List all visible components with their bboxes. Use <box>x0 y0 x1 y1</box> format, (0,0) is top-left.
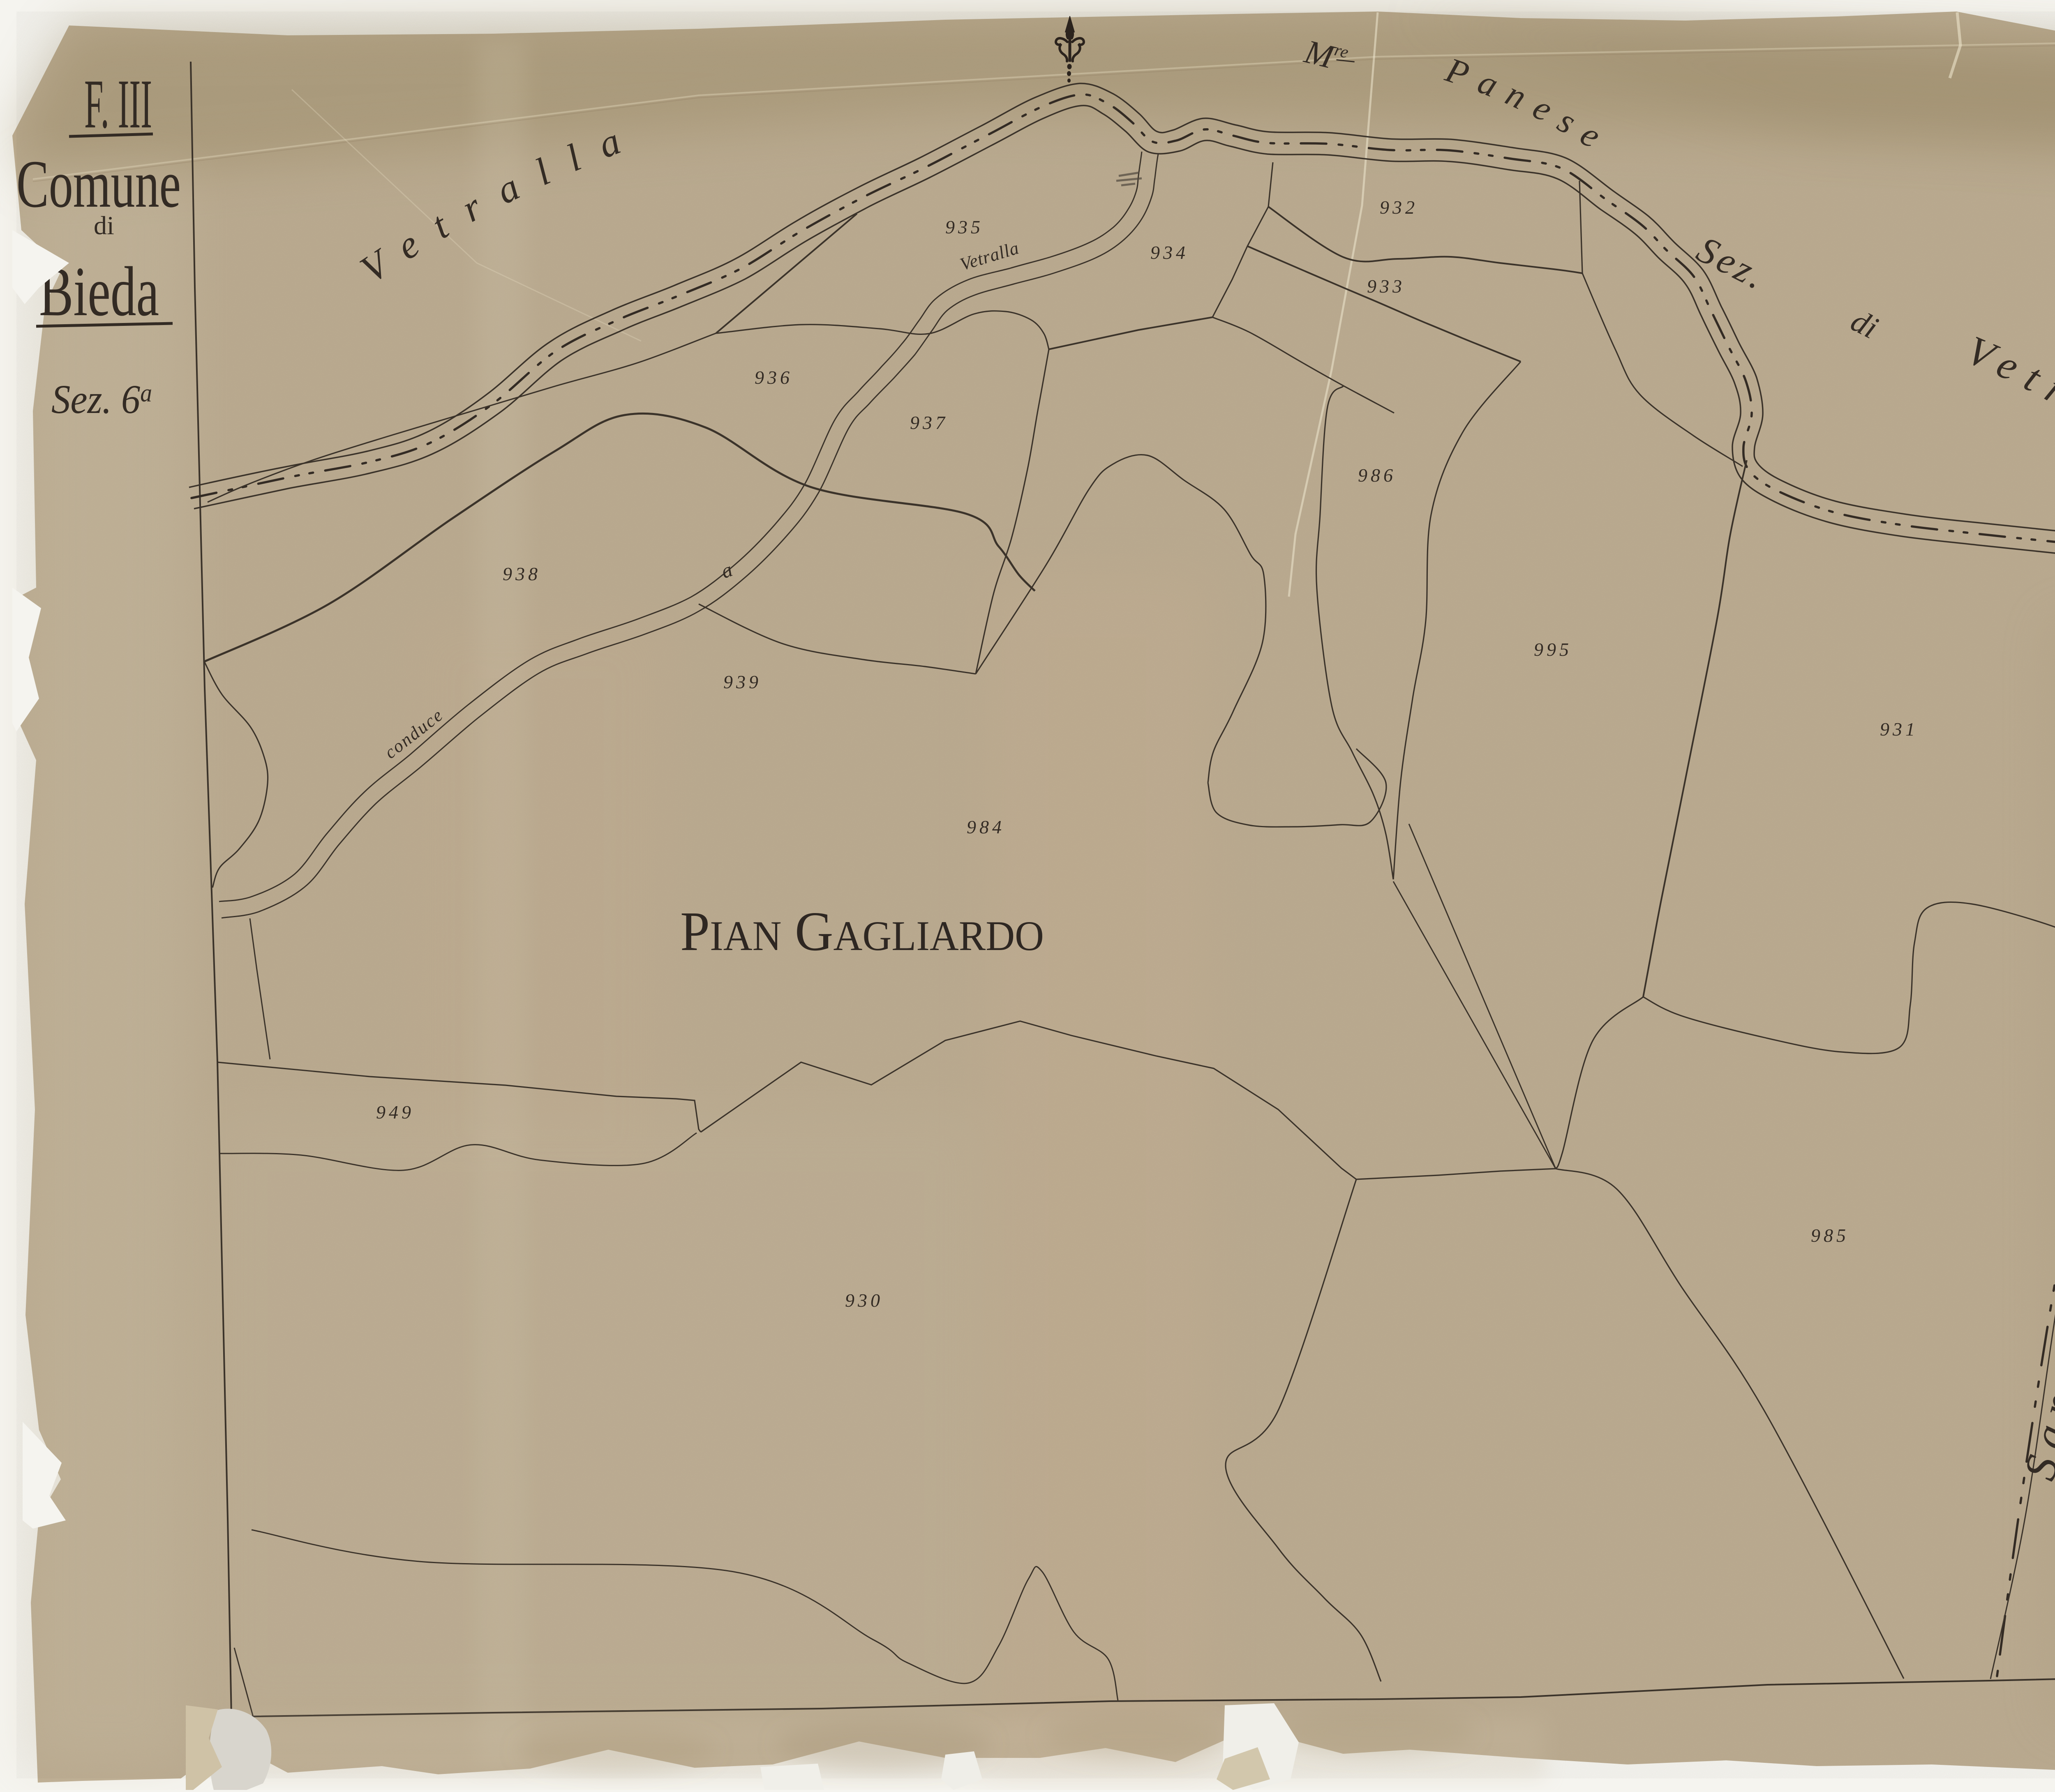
svg-text:984: 984 <box>967 816 1005 837</box>
svg-text:933: 933 <box>1367 276 1405 297</box>
svg-text:Sez. 6a: Sez. 6a <box>51 376 152 422</box>
svg-text:930: 930 <box>845 1290 883 1311</box>
svg-text:F. III: F. III <box>84 65 152 143</box>
svg-text:986: 986 <box>1358 465 1396 486</box>
svg-text:934: 934 <box>1150 242 1189 263</box>
svg-text:939: 939 <box>723 671 762 692</box>
svg-text:985: 985 <box>1811 1225 1849 1246</box>
svg-text:931: 931 <box>1880 719 1918 740</box>
svg-text:Comune: Comune <box>16 146 181 221</box>
svg-text:938: 938 <box>503 563 541 584</box>
svg-text:936: 936 <box>755 367 793 388</box>
svg-text:995: 995 <box>1534 639 1572 660</box>
svg-text:932: 932 <box>1380 197 1418 218</box>
svg-text:949: 949 <box>376 1102 414 1123</box>
svg-text:di: di <box>94 211 114 240</box>
svg-text:935: 935 <box>945 217 984 238</box>
svg-text:937: 937 <box>910 412 948 433</box>
